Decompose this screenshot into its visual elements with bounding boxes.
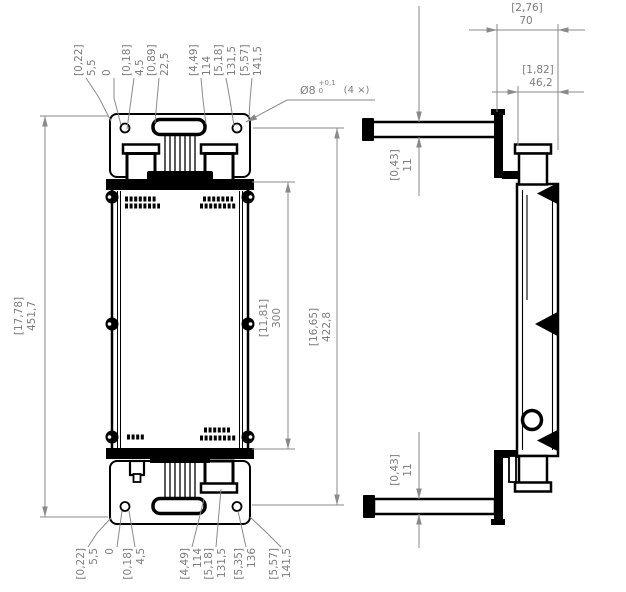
bottom-connector-block [205,461,233,484]
inch-value: [0,89] [146,12,159,76]
dim-overall-height: [17,78]451,7 [13,274,39,358]
dim-bottom-7: [5,57]141,5 [268,548,294,592]
hole-callout: Ø8 +0,1 0 (4 ×) [300,80,369,96]
dim-bottom-1: [0,22]5,5 [75,548,101,592]
mm-value: 11 [402,428,415,512]
top-flange-slot [153,120,205,135]
mm-value: 5,5 [88,548,101,592]
mm-value: 131,5 [226,12,239,76]
dim-depth-total-inch: [2,76] [487,2,567,15]
inch-value: [5,57] [239,12,252,76]
dim-depth-total-mm: 70 [486,15,566,28]
dim-bottom-3: [0,18]4,5 [122,548,148,592]
inch-value: [5,18] [213,12,226,76]
hole-quantity: (4 ×) [344,85,370,96]
mm-value: 451,7 [26,274,39,358]
inch-value: [17,78] [13,274,26,358]
inch-value: [0,18] [122,548,135,592]
mm-value: 131,5 [216,548,229,592]
front-view [106,114,255,524]
dim-depth-body-mm: 46,2 [501,77,581,90]
mm-value: 300 [271,276,284,360]
front-body [112,186,248,454]
dim-mount-span: [16,65]422,8 [308,285,334,369]
inch-value: [11,81] [258,276,271,360]
dim-rail-top: [0,43]11 [389,123,415,207]
inch-value: [0,43] [389,428,402,512]
top-flange-hole-left [121,124,130,133]
mm-value: 4,5 [134,12,147,76]
side-hole [523,411,542,430]
front-bottom-flange [110,461,250,524]
inch-value: [0,43] [389,123,402,207]
inch-value: [5,57] [268,548,281,592]
bottom-left-stub [130,461,144,475]
inch-value: [0,18] [121,12,134,76]
mm-value: 141,5 [281,548,294,592]
hole-tolerance: +0,1 0 [319,80,336,95]
dim-top-3: [0,18]4,5 [121,12,147,76]
inch-value: [5,35] [233,548,246,592]
side-top-connector [515,145,551,185]
inch-value: [16,65] [308,285,321,369]
dim-top-5: [4,49]114 [188,12,214,76]
mm-value: 136 [246,548,259,592]
bottom-flange-hole-right [233,502,242,511]
bottom-flange-hole-left [121,502,130,511]
mm-value: 22,5 [159,12,172,76]
dim-top-6: [5,18]131,5 [213,12,239,76]
inch-value: [0,22] [75,548,88,592]
mm-value: 4,5 [135,548,148,592]
bottom-flange-slot [153,499,205,514]
mm-value: 114 [201,12,214,76]
technical-drawing: [0,22]5,5 0 [0,18]4,5 [0,89]22,5 [4,49]1… [0,0,626,592]
dim-bottom-5: [5,18]131,5 [203,548,229,592]
mm-value: 0 [101,12,114,76]
dim-bottom-6: [5,35]136 [233,548,259,592]
dim-top-4: [0,89]22,5 [146,12,172,76]
dim-top-7: [5,57]141,5 [239,12,265,76]
side-top-rail-bar [362,118,497,141]
hole-diameter: Ø8 [300,85,316,96]
side-bottom-connector [509,456,551,492]
mm-value: 0 [104,548,117,592]
inch-value: [0,22] [73,12,86,76]
dim-rail-bottom: [0,43]11 [389,428,415,512]
inch-value: [4,49] [179,548,192,592]
dim-depth-body-inch: [1,82] [498,64,578,77]
inch-value: [4,49] [188,12,201,76]
dim-bottom-4: [4,49]114 [179,548,205,592]
mm-value: 5,5 [86,12,99,76]
mm-value: 11 [402,123,415,207]
dim-body-height: [11,81]300 [258,276,284,360]
inch-value: [5,18] [203,548,216,592]
tolerance-lower: 0 [319,88,323,96]
mm-value: 141,5 [252,12,265,76]
side-bottom-rail-bar [363,495,495,518]
mm-value: 422,8 [321,285,334,369]
dim-top-1: [0,22]5,5 [73,12,99,76]
